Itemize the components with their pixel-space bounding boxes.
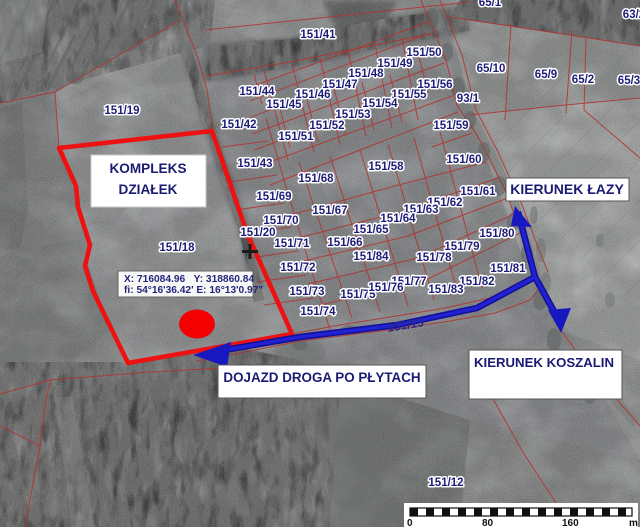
svg-text:151/52: 151/52: [309, 120, 344, 132]
svg-text:151/76: 151/76: [368, 282, 403, 294]
svg-text:m: m: [629, 518, 638, 527]
svg-text:151/59: 151/59: [433, 120, 468, 132]
svg-text:160: 160: [562, 518, 579, 527]
svg-text:151/78: 151/78: [416, 252, 452, 264]
svg-text:151/80: 151/80: [479, 228, 514, 240]
svg-text:KIERUNEK KOSZALIN: KIERUNEK KOSZALIN: [474, 355, 614, 370]
svg-text:65/9: 65/9: [535, 69, 557, 81]
svg-text:151/44: 151/44: [239, 86, 275, 98]
svg-text:65/1: 65/1: [479, 0, 502, 9]
svg-text:93/1: 93/1: [457, 93, 480, 105]
svg-text:DZIAŁEK: DZIAŁEK: [119, 182, 178, 197]
svg-text:0: 0: [407, 518, 413, 527]
svg-text:65/10: 65/10: [477, 63, 506, 75]
svg-text:KOMPLEKS: KOMPLEKS: [109, 161, 186, 176]
svg-text:151/65: 151/65: [353, 224, 389, 236]
svg-text:fi: 54°16'36.42' E: 16°13'0.97: fi: 54°16'36.42' E: 16°13'0.97": [124, 285, 263, 296]
svg-text:151/74: 151/74: [300, 306, 336, 318]
svg-text:KIERUNEK ŁAZY: KIERUNEK ŁAZY: [510, 181, 624, 197]
svg-text:151/20: 151/20: [240, 227, 275, 239]
svg-text:63/2: 63/2: [623, 9, 640, 21]
svg-text:151/81: 151/81: [490, 263, 526, 275]
svg-text:151/66: 151/66: [327, 237, 362, 249]
svg-text:151/18: 151/18: [159, 242, 195, 254]
svg-text:X: 716084.96 Y: 318860.84: X: 716084.96 Y: 318860.84: [124, 274, 254, 285]
svg-text:151/61: 151/61: [460, 186, 496, 198]
svg-text:151/73: 151/73: [289, 286, 324, 298]
svg-text:65/2: 65/2: [572, 74, 594, 86]
svg-text:151/72: 151/72: [280, 262, 315, 274]
svg-text:151/82: 151/82: [459, 276, 494, 288]
svg-text:151/58: 151/58: [368, 161, 404, 173]
svg-text:151/67: 151/67: [312, 205, 347, 217]
svg-text:151/45: 151/45: [266, 99, 302, 111]
svg-text:151/42: 151/42: [221, 119, 256, 131]
svg-text:DOJAZD DROGA PO PŁYTACH: DOJAZD DROGA PO PŁYTACH: [223, 370, 420, 385]
svg-text:151/84: 151/84: [353, 251, 389, 263]
svg-text:151/12: 151/12: [428, 477, 463, 489]
svg-text:151/70: 151/70: [263, 215, 298, 227]
svg-text:151/43: 151/43: [237, 158, 272, 170]
svg-text:151/19: 151/19: [104, 105, 139, 117]
svg-text:151/41: 151/41: [300, 29, 336, 41]
svg-text:151/71: 151/71: [274, 238, 310, 250]
svg-text:80: 80: [482, 518, 494, 527]
svg-text:151/60: 151/60: [446, 154, 481, 166]
svg-text:151/68: 151/68: [298, 173, 334, 185]
svg-text:151/83: 151/83: [428, 284, 463, 296]
svg-text:65/3: 65/3: [618, 75, 640, 87]
svg-text:151/51: 151/51: [278, 131, 314, 143]
svg-text:151/69: 151/69: [256, 191, 291, 203]
